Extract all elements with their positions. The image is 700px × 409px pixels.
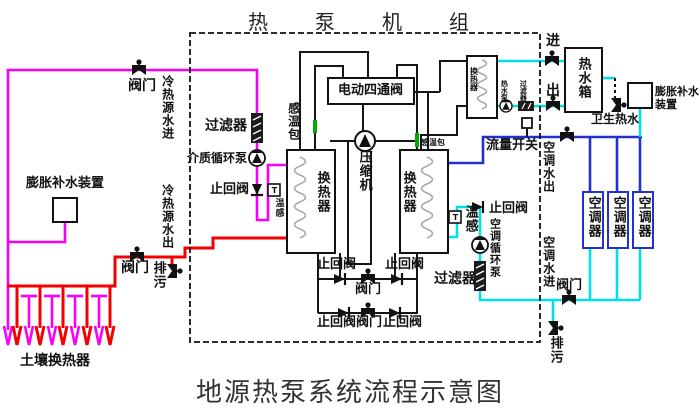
- compressor-label: 压缩机: [357, 150, 371, 192]
- drain-valve-icon: [167, 264, 183, 278]
- flow-switch-label: 流量开关: [486, 139, 538, 153]
- valve-label: 阀门: [121, 261, 149, 276]
- expansion-device-label: 膨胀补水装置: [655, 85, 700, 111]
- pump-icon: [500, 100, 512, 112]
- ground-heat-exchanger-label: 土壤换热器: [20, 354, 90, 369]
- filter-icon: [251, 113, 263, 143]
- temp-sensor-label: 温感: [273, 198, 282, 218]
- filter-label: 过滤器: [434, 272, 476, 287]
- inlet-label: 进: [546, 34, 560, 49]
- diagram-canvas: 热泵机组 地源热泵系统流程示意图 阀门 冷热源水进 膨胀补水装置 过滤器 介质循…: [0, 0, 700, 409]
- source-water-in-label: 冷热源水进: [161, 75, 174, 140]
- temp-bulb-label: 感温包: [421, 139, 445, 147]
- flow-switch-icon: [522, 118, 532, 128]
- drain-label: 排污: [151, 261, 165, 289]
- filter-label: 过滤器: [519, 80, 526, 101]
- valve-icon: [132, 59, 146, 75]
- check-valve-label: 止回阀: [383, 316, 422, 330]
- red-source-pipes: [7, 238, 302, 345]
- valve-label: 阀门: [556, 279, 582, 293]
- hot-water-tank-label: 热水箱: [576, 57, 590, 99]
- temp-bulb-mark-left: [313, 120, 317, 133]
- t-sensor-mark: T: [450, 213, 461, 222]
- temp-bulb-mark-right: [415, 133, 419, 147]
- check-valve-label: 止回阀: [385, 258, 424, 272]
- caption-title: 地源热泵系统流程示意图: [196, 372, 504, 409]
- sanitary-valve-icon: [611, 98, 627, 112]
- ac-water-in-label: 空调水进: [542, 236, 555, 288]
- check-valve-icon: [251, 184, 263, 195]
- medium-pump-label: 介质循环泵: [187, 152, 247, 165]
- drain-label: 排污: [548, 336, 562, 364]
- ac-pump-label: 空调循环泵: [489, 218, 501, 278]
- pump-icon: [472, 237, 488, 253]
- valve-label: 阀门: [356, 316, 382, 330]
- hot-water-pump-label: 热水泵: [500, 80, 507, 101]
- source-water-out-label: 冷热源水出: [161, 184, 174, 249]
- t-sensor-mark: T: [269, 186, 280, 195]
- outlet-label: 出: [546, 84, 560, 99]
- temp-sensor-label: 温感: [463, 205, 477, 233]
- ac-unit-label: 空调器: [611, 196, 625, 238]
- page-title: 热泵机组: [248, 6, 516, 35]
- valve-icon: [560, 126, 574, 142]
- filter-label: 过滤器: [205, 119, 247, 134]
- check-valve-icon: [391, 273, 402, 285]
- valve-label: 阀门: [355, 283, 381, 297]
- valve-label: 阀门: [128, 79, 156, 94]
- valve-icon: [545, 50, 559, 66]
- heat-exchanger-label: 换热器: [401, 171, 415, 213]
- heat-exchanger-label: 换热器: [469, 67, 477, 91]
- magenta-source-pipes: [4, 70, 302, 345]
- compressor-icon: [355, 131, 375, 151]
- ac-unit-label: 空调器: [636, 196, 650, 238]
- check-valve-label: 止回阀: [317, 316, 356, 330]
- temp-bulb-label: 感温包: [287, 102, 300, 141]
- check-valve-label: 止回阀: [317, 258, 356, 272]
- expansion-device-left-box: [53, 198, 77, 222]
- check-valve-label: 止回阀: [489, 202, 528, 216]
- four-way-valve-label: 电动四通阀: [338, 84, 403, 98]
- heat-exchanger-label: 换热器: [315, 171, 329, 213]
- sanitary-hot-water-label: 卫生热水: [591, 113, 639, 126]
- filter-icon: [518, 101, 534, 111]
- ac-unit-label: 空调器: [586, 196, 600, 238]
- ac-water-out-label: 空调水出: [542, 141, 555, 193]
- drain-valve-icon: [548, 321, 564, 335]
- expansion-device-right-box: [628, 83, 652, 108]
- expansion-device-label: 膨胀补水装置: [26, 177, 104, 191]
- check-valve-label: 止回阀: [210, 183, 249, 197]
- pump-icon: [249, 150, 265, 166]
